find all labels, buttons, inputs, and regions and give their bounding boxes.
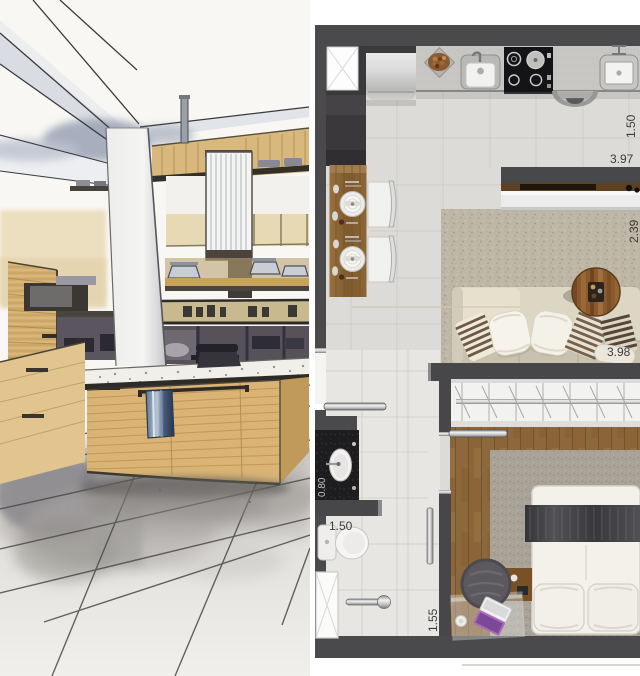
svg-text:1.50: 1.50 [624,114,638,138]
svg-text:3.98: 3.98 [607,345,631,359]
svg-text:1.50: 1.50 [329,519,353,533]
svg-text:0.80: 0.80 [317,477,328,497]
svg-text:2.39: 2.39 [627,219,640,243]
svg-text:3.97: 3.97 [610,152,634,166]
svg-text:1.55: 1.55 [426,608,440,632]
